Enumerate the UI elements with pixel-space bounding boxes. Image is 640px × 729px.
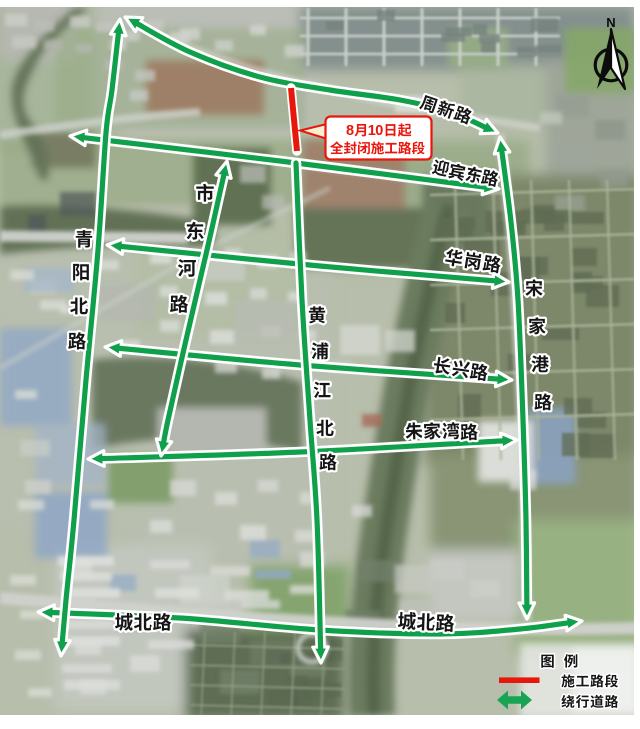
svg-text:0: 0 [375,123,383,139]
svg-text:8: 8 [346,123,354,139]
svg-text:N: N [606,15,615,30]
